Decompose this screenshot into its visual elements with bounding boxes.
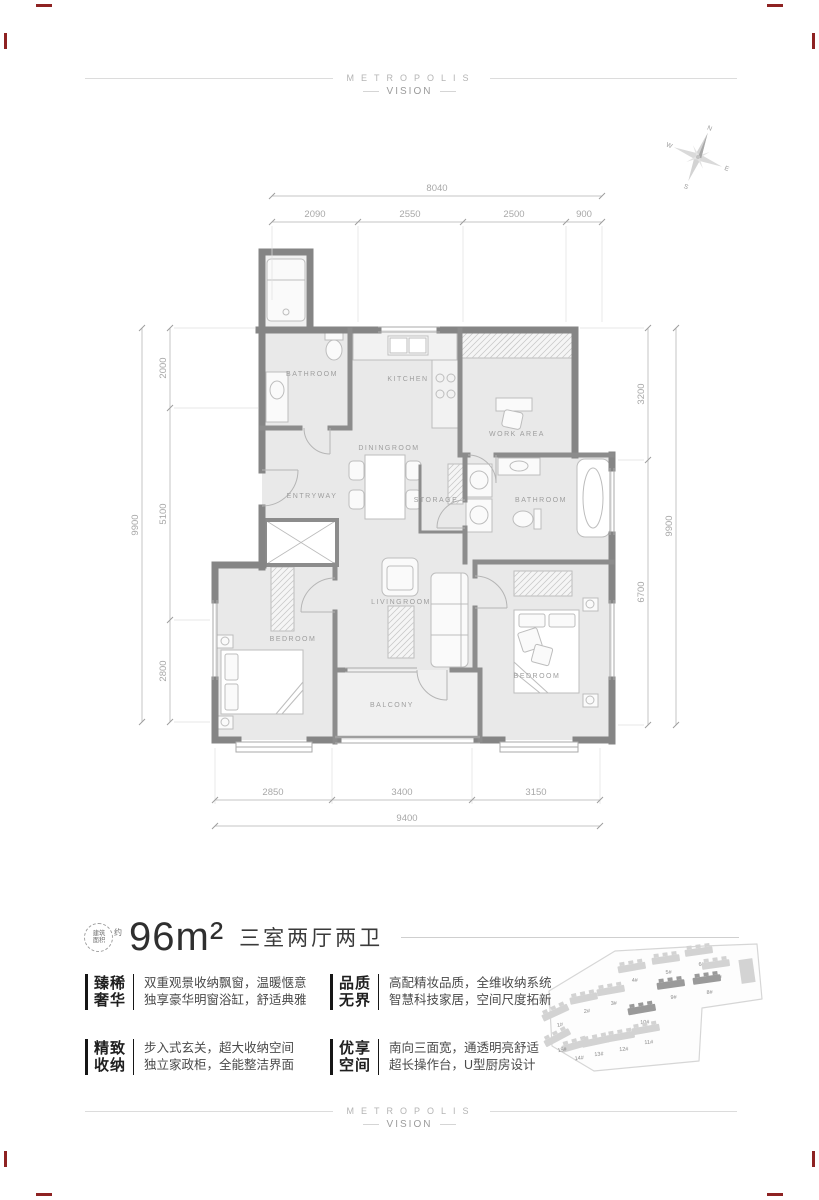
dim-bottom-3: 3150 bbox=[525, 787, 546, 798]
area-value: 96m² bbox=[129, 915, 224, 959]
badge-line2: 面积 bbox=[92, 937, 105, 943]
compass-s: S bbox=[683, 183, 690, 191]
divider bbox=[440, 1124, 456, 1125]
dim-left-3: 2800 bbox=[158, 660, 169, 681]
compass-e: E bbox=[723, 165, 730, 173]
feature-block-4: 优享 空间 南向三面宽，通透明亮舒适 超长操作台，U型厨房设计 bbox=[330, 1039, 575, 1075]
dim-top-4: 900 bbox=[576, 209, 592, 220]
layout-label: 三室两厅两卫 bbox=[239, 922, 383, 952]
dim-bottom-2: 3400 bbox=[391, 787, 412, 798]
divider bbox=[363, 1124, 379, 1125]
feature-block-3: 品质 无界 高配精妆品质，全维收纳系统 智慧科技家居，空间尺度拓新 bbox=[330, 974, 575, 1010]
room-label-bedroom: BEDROOM bbox=[270, 636, 317, 643]
vanity-icon bbox=[266, 372, 288, 422]
bathtub-icon bbox=[577, 459, 610, 537]
brand-title: METROPOLIS bbox=[333, 1106, 490, 1116]
compass-n: N bbox=[706, 125, 713, 133]
room-label-diningroom: DININGROOM bbox=[358, 445, 419, 452]
unit-summary: 建筑 面积 约 96m² 三室两厅两卫 bbox=[84, 915, 739, 959]
dim-left-1: 2000 bbox=[158, 357, 169, 378]
room-label-bathroom: BATHROOM bbox=[286, 371, 338, 378]
feature-title: 臻稀 奢华 bbox=[85, 974, 134, 1010]
divider bbox=[490, 1111, 738, 1112]
feature-desc: 南向三面宽，通透明亮舒适 超长操作台，U型厨房设计 bbox=[389, 1039, 539, 1074]
room-label-livingroom: LIVINGROOM bbox=[371, 599, 431, 606]
feature-title: 精致 收纳 bbox=[85, 1039, 134, 1075]
toilet-icon bbox=[513, 509, 541, 529]
floor-plan: BATHROOM KITCHEN WORK AREA DININGROOM EN… bbox=[213, 252, 614, 752]
dim-right-1: 3200 bbox=[636, 383, 647, 404]
feature-desc: 高配精妆品质，全维收纳系统 智慧科技家居，空间尺度拓新 bbox=[389, 974, 552, 1009]
dim-top-1: 2090 bbox=[304, 209, 325, 220]
room-label-storage: STORAGE bbox=[414, 497, 459, 504]
site-building-label: 11# bbox=[644, 1039, 654, 1046]
dim-bottom-1: 2850 bbox=[262, 787, 283, 798]
armchair-icon bbox=[382, 558, 418, 596]
feature-grid: 臻稀 奢华 双重观景收纳飘窗，温暖惬意 独享豪华明窗浴缸，舒适典雅 品质 无界 … bbox=[85, 974, 575, 1075]
site-building-label: 14# bbox=[574, 1055, 585, 1062]
dim-left-2: 5100 bbox=[158, 503, 169, 524]
room-label-bedroom-2: BEDROOM bbox=[514, 673, 561, 680]
room-label-bathroom-2: BATHROOM bbox=[515, 497, 567, 504]
brand-subtitle: VISION bbox=[387, 1119, 433, 1130]
site-building-label: 13# bbox=[594, 1051, 605, 1058]
bay-tub-icon bbox=[267, 259, 305, 321]
divider bbox=[85, 1111, 333, 1112]
room-label-work-area: WORK AREA bbox=[489, 431, 545, 438]
dim-bottom-total: 9400 bbox=[396, 813, 417, 824]
dim-right-2: 6700 bbox=[636, 581, 647, 602]
room-label-balcony: BALCONY bbox=[370, 702, 414, 709]
dim-top-3: 2500 bbox=[503, 209, 524, 220]
footer-brandline: METROPOLIS bbox=[85, 1106, 737, 1116]
footer-subline: VISION bbox=[0, 1119, 819, 1130]
area-badge: 建筑 面积 bbox=[84, 923, 113, 952]
feature-title: 优享 空间 bbox=[330, 1039, 379, 1075]
room-label-kitchen: KITCHEN bbox=[387, 376, 428, 383]
vanity-icon bbox=[498, 458, 540, 475]
feature-desc: 双重观景收纳飘窗，温暖惬意 独享豪华明窗浴缸，舒适典雅 bbox=[144, 974, 307, 1009]
dim-left-total: 9900 bbox=[130, 514, 141, 535]
feature-desc: 步入式玄关，超大收纳空间 独立家政柜，全能整洁界面 bbox=[144, 1039, 294, 1074]
toilet-icon bbox=[325, 333, 343, 360]
dim-top-2: 2550 bbox=[399, 209, 420, 220]
dim-top-total: 8040 bbox=[426, 183, 447, 194]
site-building-label: 12# bbox=[619, 1046, 630, 1053]
approx-label: 约 bbox=[114, 927, 122, 938]
divider bbox=[401, 937, 739, 938]
compass-icon: N E S W bbox=[653, 113, 742, 203]
compass-w: W bbox=[665, 141, 674, 150]
dim-right-total: 9900 bbox=[664, 515, 675, 536]
sofa-icon bbox=[431, 573, 468, 667]
room-label-entryway: ENTRYWAY bbox=[287, 493, 338, 500]
feature-block-1: 臻稀 奢华 双重观景收纳飘窗，温暖惬意 独享豪华明窗浴缸，舒适典雅 bbox=[85, 974, 330, 1010]
badge-line1: 建筑 bbox=[92, 930, 105, 936]
feature-title: 品质 无界 bbox=[330, 974, 379, 1010]
feature-block-2: 精致 收纳 步入式玄关，超大收纳空间 独立家政柜，全能整洁界面 bbox=[85, 1039, 330, 1075]
